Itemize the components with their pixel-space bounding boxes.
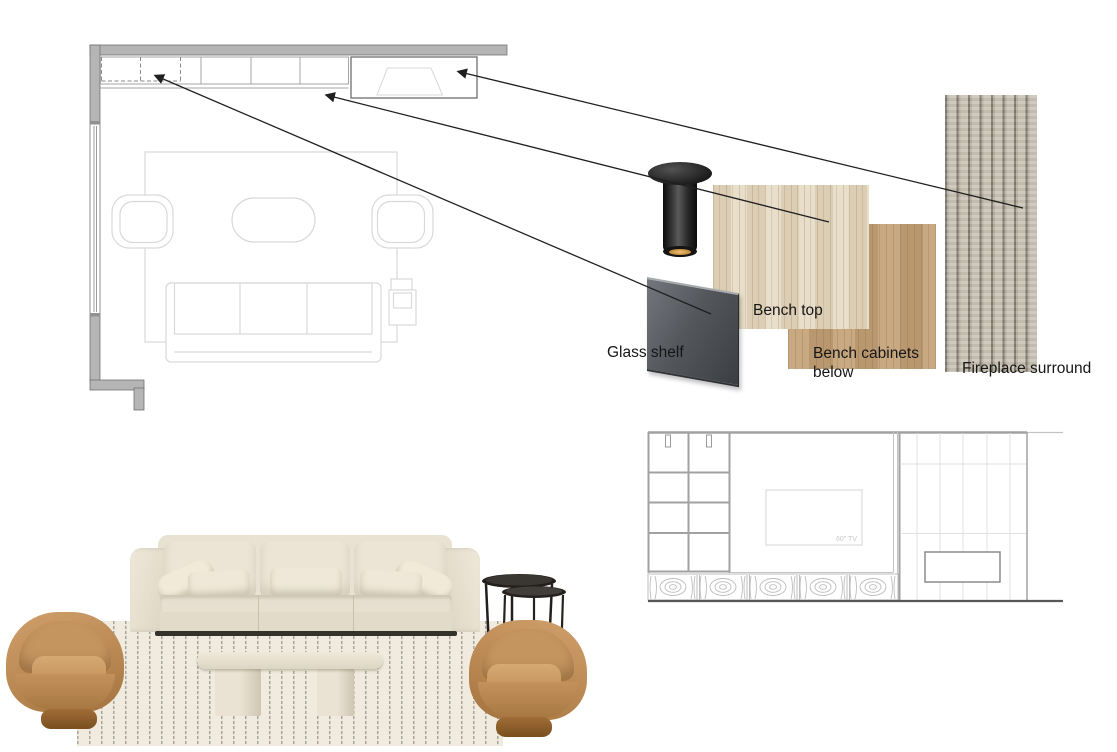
- fireplace-surround-label: Fireplace surround: [962, 359, 1091, 378]
- bench-cabinets-label: Bench cabinets below: [813, 344, 941, 383]
- light-glow: [669, 249, 691, 256]
- design-board: 60" TV: [0, 0, 1117, 752]
- bench-top-label: Bench top: [753, 301, 823, 320]
- material-samples: [0, 0, 1117, 752]
- ceiling-light-image: [648, 160, 714, 256]
- glass-shelf-label: Glass shelf: [607, 343, 684, 362]
- fireplace-surround-sample-image: [945, 95, 1037, 372]
- light-canopy: [648, 162, 712, 185]
- glass-shelf-sample-image: [647, 277, 739, 387]
